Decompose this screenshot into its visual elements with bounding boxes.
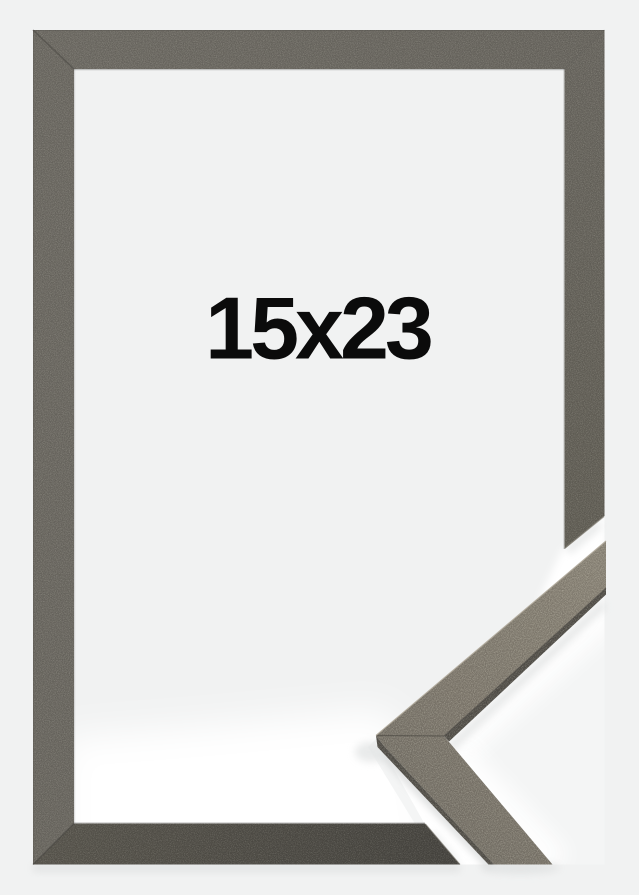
svg-text:15x23: 15x23 bbox=[205, 279, 431, 378]
